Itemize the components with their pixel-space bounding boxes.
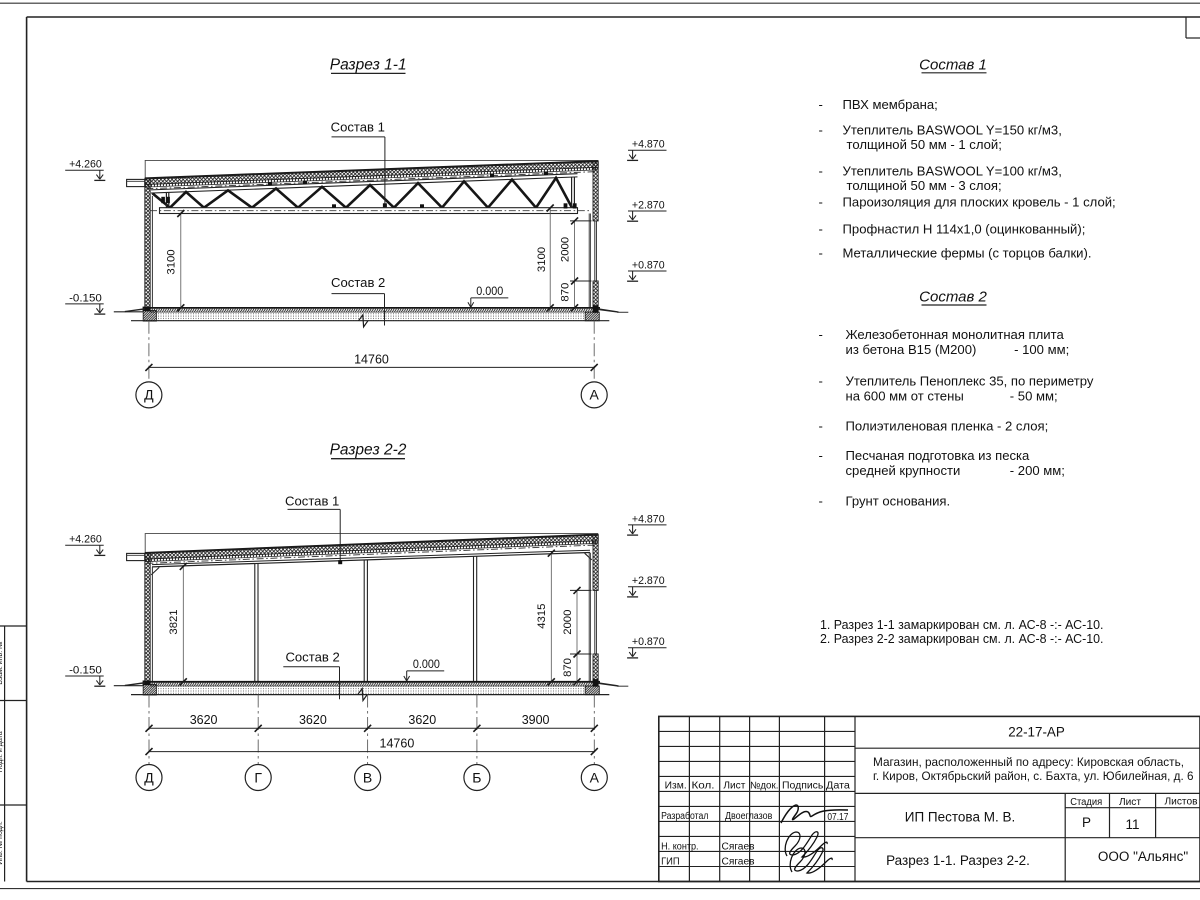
svg-text:ИП Пестова М. В.: ИП Пестова М. В. (905, 810, 1015, 825)
svg-text:Лист: Лист (1119, 797, 1141, 808)
svg-text:Металлические фермы (с торцов: Металлические фермы (с торцов балки). (843, 246, 1092, 261)
svg-text:Р: Р (1082, 815, 1091, 830)
svg-text:22-17-АР: 22-17-АР (1008, 725, 1065, 740)
svg-text:Изм.: Изм. (665, 781, 687, 792)
svg-text:Утеплитель Пеноплекс 35, по пе: Утеплитель Пеноплекс 35, по периметру (846, 374, 1094, 389)
svg-text:Разрез 1-1. Разрез 2-2.: Разрез 1-1. Разрез 2-2. (886, 853, 1030, 868)
svg-text:3100: 3100 (536, 247, 548, 272)
svg-text:-: - (819, 374, 823, 389)
svg-text:Полиэтиленовая пленка - 2 слоя: Полиэтиленовая пленка - 2 слоя; (846, 419, 1049, 434)
svg-text:Песчаная подготовка из песка: Песчаная подготовка из песка (846, 448, 1031, 463)
svg-text:Состав 1: Состав 1 (919, 57, 987, 74)
svg-text:Подп. и дата: Подп. и дата (0, 731, 4, 772)
svg-text:3620: 3620 (408, 713, 436, 727)
svg-text:Разрез 2-2: Разрез 2-2 (330, 442, 407, 459)
svg-text:ПВХ мембрана;: ПВХ мембрана; (843, 97, 938, 112)
svg-text:3900: 3900 (522, 713, 550, 727)
svg-text:0.000: 0.000 (476, 286, 503, 298)
svg-text:А: А (590, 769, 600, 785)
svg-text:Взам. инв. №: Взам. инв. № (0, 641, 4, 684)
svg-text:Состав 1: Состав 1 (285, 494, 339, 509)
svg-text:-: - (819, 419, 823, 434)
svg-text:средней крупности: средней крупности (846, 463, 961, 478)
svg-text:+0.870: +0.870 (632, 636, 665, 648)
svg-text:2000: 2000 (560, 237, 572, 262)
svg-text:+2.870: +2.870 (632, 575, 665, 587)
svg-text:Состав 2: Состав 2 (285, 650, 339, 665)
svg-text:2000: 2000 (562, 610, 574, 635)
svg-text:-: - (819, 164, 823, 179)
svg-text:Состав 2: Состав 2 (919, 289, 987, 306)
svg-text:толщиной 50 мм - 3 слоя;: толщиной 50 мм - 3 слоя; (847, 178, 1002, 193)
svg-text:Магазин, расположенный по адре: Магазин, расположенный по адресу: Кировс… (873, 755, 1184, 769)
svg-text:Профнастил Н 114х1,0 (оцинкова: Профнастил Н 114х1,0 (оцинкованный); (843, 222, 1086, 237)
svg-text:+0.870: +0.870 (632, 259, 665, 271)
svg-text:14760: 14760 (354, 352, 389, 366)
svg-text:-: - (819, 195, 823, 210)
svg-text:+4.260: +4.260 (69, 534, 102, 546)
svg-text:Стадия: Стадия (1070, 797, 1102, 808)
svg-text:Листов: Листов (1165, 796, 1198, 807)
svg-text:Железобетонная монолитная пли: Железобетонная монолитная плита (846, 327, 1065, 342)
svg-text:Д: Д (144, 387, 154, 403)
svg-text:-: - (819, 222, 823, 237)
svg-text:Инв. № подл.: Инв. № подл. (0, 821, 4, 865)
svg-text:на 600 мм от стены: на 600 мм от стены (846, 388, 964, 403)
svg-text:Г: Г (254, 769, 262, 785)
svg-text:Грунт основания.: Грунт основания. (846, 494, 951, 509)
svg-text:Д: Д (144, 769, 154, 785)
svg-text:- 200 мм;: - 200 мм; (1010, 463, 1065, 478)
svg-text:3100: 3100 (165, 249, 177, 274)
svg-text:- 100 мм;: - 100 мм; (1014, 342, 1069, 357)
svg-text:-0.150: -0.150 (69, 292, 102, 304)
svg-text:-: - (819, 123, 823, 138)
svg-text:-: - (819, 246, 823, 261)
svg-text:Кол.: Кол. (692, 781, 715, 792)
svg-text:толщиной 50 мм - 1 слой;: толщиной 50 мм - 1 слой; (847, 137, 1002, 152)
svg-text:11: 11 (1125, 817, 1139, 832)
svg-text:Утеплитель BASWOOL Y=100 кг/м3: Утеплитель BASWOOL Y=100 кг/м3, (843, 164, 1062, 179)
svg-text:Сягаев: Сягаев (722, 841, 755, 852)
svg-text:В: В (363, 769, 372, 785)
svg-text:ООО "Альянс": ООО "Альянс" (1098, 849, 1188, 864)
svg-text:Утеплитель BASWOOL Y=150 кг/м3: Утеплитель BASWOOL Y=150 кг/м3, (843, 123, 1062, 138)
svg-text:2. Разрез 2-2 замаркирован см.: 2. Разрез 2-2 замаркирован см. л. АС-8 -… (820, 632, 1104, 646)
svg-text:870: 870 (562, 658, 574, 677)
svg-text:Б: Б (472, 769, 481, 785)
svg-text:Подпись: Подпись (782, 781, 823, 792)
svg-text:-: - (819, 327, 823, 342)
svg-text:+4.870: +4.870 (632, 513, 665, 525)
svg-text:Дата: Дата (826, 781, 850, 792)
svg-text:Двоеглазов: Двоеглазов (725, 811, 772, 822)
svg-text:14760: 14760 (380, 736, 415, 750)
svg-text:Н. контр.: Н. контр. (661, 841, 699, 852)
svg-text:№док.: №док. (750, 781, 778, 792)
svg-text:-: - (819, 448, 823, 463)
svg-text:Разработал: Разработал (661, 811, 709, 822)
svg-text:+4.260: +4.260 (69, 159, 102, 171)
svg-text:3620: 3620 (299, 713, 327, 727)
svg-text:- 50 мм;: - 50 мм; (1010, 388, 1058, 403)
svg-text:из бетона В15 (М200): из бетона В15 (М200) (846, 342, 977, 357)
svg-text:Состав 1: Состав 1 (331, 120, 385, 135)
svg-text:0.000: 0.000 (413, 659, 440, 671)
svg-text:ГИП: ГИП (661, 857, 680, 868)
svg-text:-0.150: -0.150 (69, 664, 102, 676)
svg-text:Сягаев: Сягаев (722, 857, 755, 868)
svg-text:+4.870: +4.870 (632, 139, 665, 151)
svg-text:1. Разрез 1-1 замаркирован см.: 1. Разрез 1-1 замаркирован см. л. АС-8 -… (820, 618, 1104, 632)
svg-text:Лист: Лист (723, 781, 745, 792)
svg-text:870: 870 (560, 283, 572, 302)
svg-text:4315: 4315 (536, 604, 548, 629)
svg-text:-: - (819, 97, 823, 112)
svg-text:3821: 3821 (168, 609, 180, 634)
svg-text:3620: 3620 (190, 713, 218, 727)
svg-text:А: А (590, 387, 600, 403)
svg-text:Разрез 1-1: Разрез 1-1 (330, 56, 407, 73)
svg-text:-: - (819, 494, 823, 509)
svg-text:Состав 2: Состав 2 (331, 275, 385, 290)
svg-text:Пароизоляция для плоских крове: Пароизоляция для плоских кровель - 1 сло… (843, 195, 1116, 210)
svg-text:+2.870: +2.870 (632, 199, 665, 211)
svg-text:г. Киров, Октябрьский район, с: г. Киров, Октябрьский район, с. Бахта, у… (873, 769, 1194, 783)
svg-text:07.17: 07.17 (827, 812, 848, 823)
